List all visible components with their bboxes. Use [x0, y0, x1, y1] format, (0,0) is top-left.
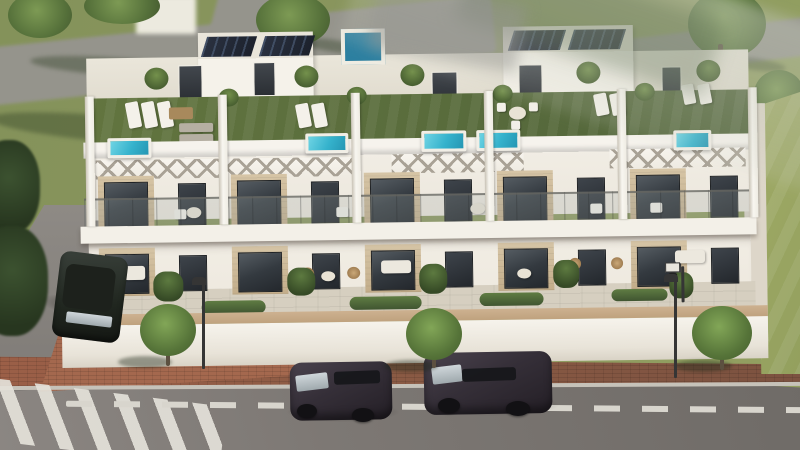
party-wall-fin	[218, 95, 229, 225]
car-wheel	[506, 401, 530, 416]
party-wall-fin	[617, 89, 628, 219]
garden-hedge	[479, 292, 543, 306]
outdoor-sofa	[381, 260, 411, 273]
basketball-pole	[681, 266, 685, 302]
car-wheel	[438, 398, 460, 413]
car-side-windows	[334, 370, 380, 385]
terrace-window	[711, 248, 739, 284]
solar-panel	[508, 30, 566, 51]
sun-lounger	[179, 123, 213, 132]
party-wall-fin	[351, 93, 362, 223]
rooftop-pool	[305, 133, 348, 154]
terrace-palm	[287, 267, 315, 295]
terrace-palm	[553, 260, 579, 288]
rattan-chair	[611, 257, 623, 269]
rooftop-pool	[421, 130, 466, 152]
roof-access-door	[253, 62, 275, 96]
render-scene: Aerial 3D architectural render of a terr…	[0, 0, 800, 450]
car-wheel	[352, 408, 374, 422]
roadside-bush	[0, 140, 40, 234]
car-side-windows	[462, 367, 516, 382]
terrace-door-glass	[238, 252, 283, 293]
solar-panel	[259, 35, 315, 56]
rooftop-pool	[107, 138, 151, 159]
roof-chair	[511, 121, 520, 130]
street-lamp-head	[192, 277, 206, 285]
car-wheel	[297, 404, 317, 418]
solar-panel	[201, 36, 257, 57]
street-lamp-head	[664, 274, 678, 282]
sidewalk-tree	[140, 304, 196, 356]
pergola	[609, 147, 745, 168]
sidewalk-tree-shadow	[384, 360, 438, 372]
street-lamp-pole	[674, 278, 677, 378]
terrace-palm	[419, 264, 447, 294]
party-wall-fin	[85, 97, 96, 227]
terrace-palm	[153, 271, 183, 301]
solar-panel	[568, 29, 626, 50]
party-wall-fin	[748, 87, 759, 217]
roof-chair	[497, 103, 506, 112]
party-wall-fin	[484, 91, 495, 221]
rattan-chair	[347, 267, 360, 279]
roof-access-door	[178, 65, 203, 101]
roof-chair	[529, 102, 538, 111]
parked-car-roof	[62, 263, 117, 313]
garden-hedge	[611, 289, 667, 302]
garden-hedge	[350, 296, 422, 310]
roof-jacuzzi	[341, 28, 385, 65]
sidewalk-tree	[406, 308, 462, 360]
basketball-board	[665, 262, 680, 272]
coffee-table	[169, 107, 193, 119]
terrace-window	[578, 249, 606, 285]
rooftop-pool	[673, 130, 711, 151]
terrace-window	[445, 251, 473, 287]
sidewalk-tree	[692, 306, 752, 360]
sidewalk-tree-shadow	[118, 356, 172, 368]
street-lamp-pole	[202, 281, 205, 369]
rooftop-pool	[476, 130, 520, 152]
